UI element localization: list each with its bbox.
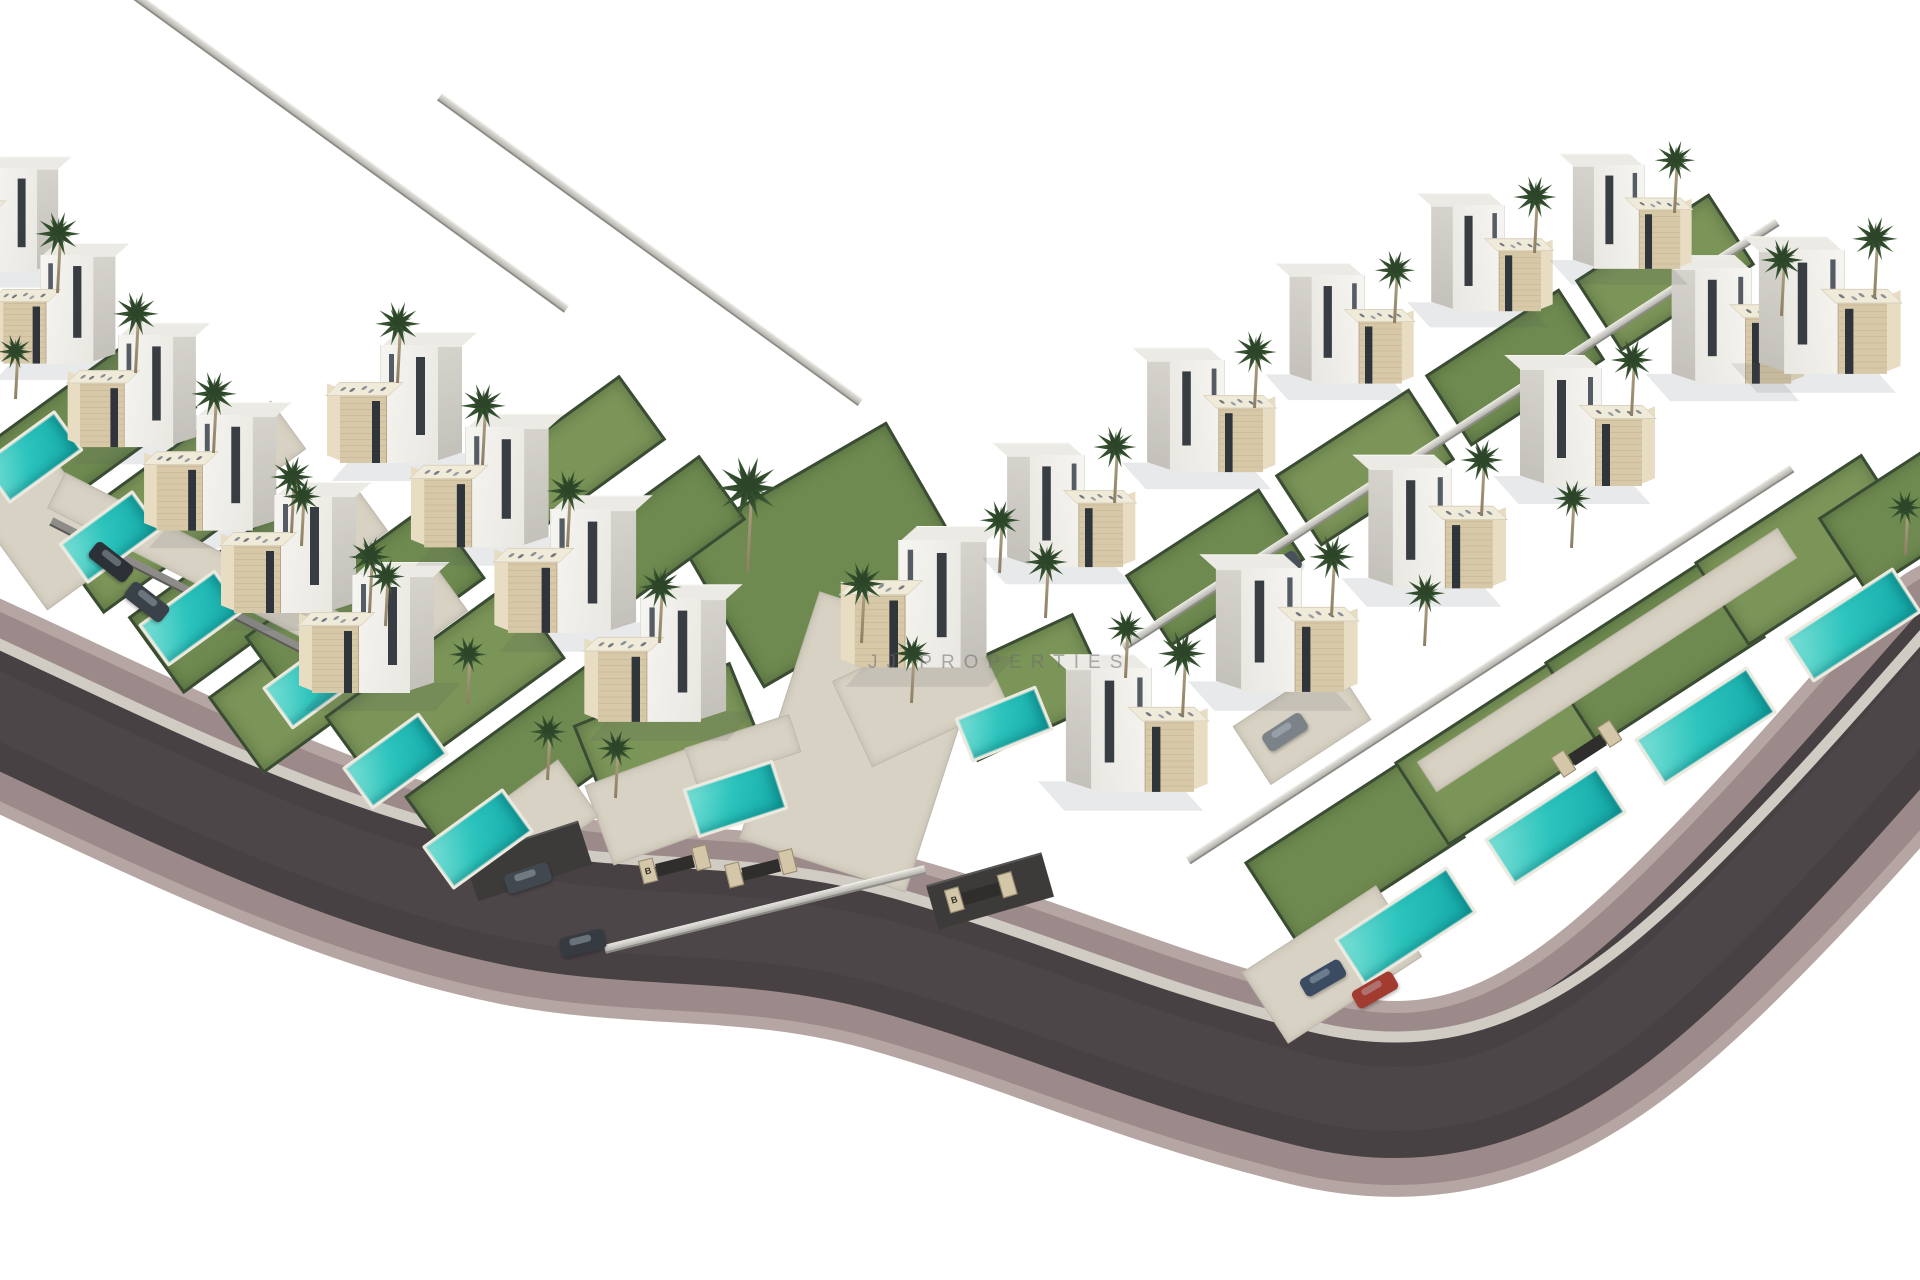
palm-fronds-inner	[721, 458, 776, 513]
palms-layer	[0, 0, 1920, 1280]
palm-fronds-inner	[1162, 631, 1203, 672]
development-render: BB JJ PROPERTIES	[0, 0, 1920, 1280]
palm-fronds-inner	[1890, 491, 1920, 521]
